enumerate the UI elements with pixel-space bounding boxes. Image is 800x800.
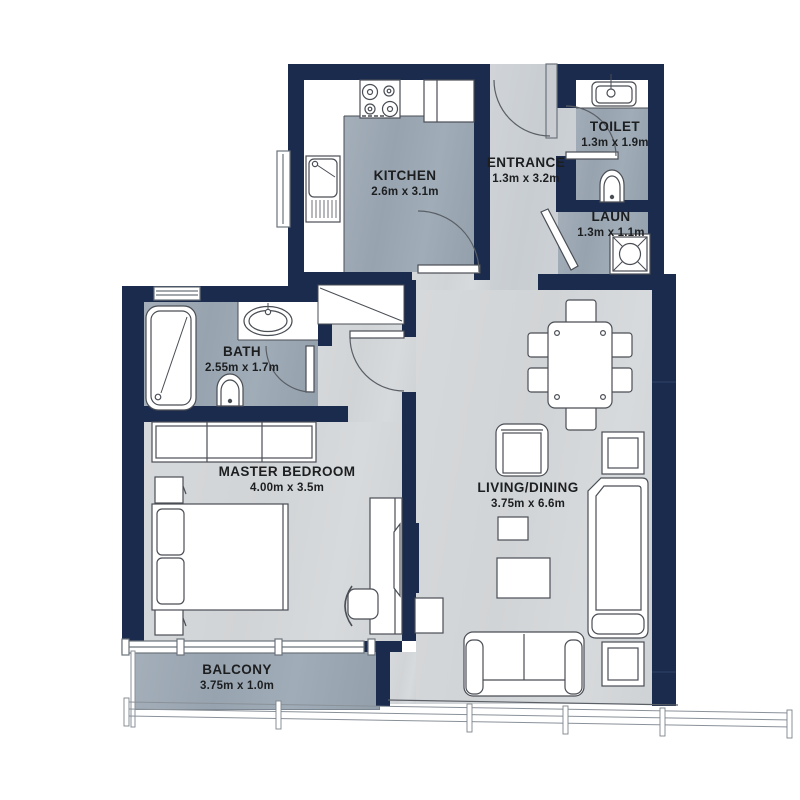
living-dining-name: LIVING/DINING (477, 480, 578, 497)
bath-sink-icon (244, 303, 292, 336)
room-label-entrance: ENTRANCE 1.3m x 3.2m (487, 155, 565, 186)
nightstand-top (155, 477, 186, 503)
wall-seams (652, 382, 676, 672)
bath-toilet-icon (217, 374, 243, 406)
chaise-lounge (588, 478, 648, 638)
room-label-kitchen: KITCHEN 2.6m x 3.1m (371, 168, 438, 199)
bathtub-icon (146, 306, 196, 410)
bath-window (154, 287, 200, 300)
balcony-dims: 3.75m x 1.0m (200, 679, 274, 693)
room-label-balcony: BALCONY 3.75m x 1.0m (200, 662, 274, 693)
toilet-fixture-icon (600, 170, 624, 202)
coffee-table (497, 558, 550, 598)
armchair (496, 424, 548, 476)
tv-icon (413, 523, 419, 593)
ottoman (498, 517, 528, 540)
kitchen-window (277, 151, 290, 227)
toilet-dims: 1.3m x 1.9m (581, 136, 648, 150)
kitchen-door (418, 211, 480, 273)
bedroom-window (122, 639, 375, 655)
living-dining-dims: 3.75m x 6.6m (477, 497, 578, 511)
plan-symbols (0, 0, 800, 800)
room-label-living-dining: LIVING/DINING 3.75m x 6.6m (477, 480, 578, 511)
master-bedroom-dims: 4.00m x 3.5m (219, 481, 356, 495)
entrance-name: ENTRANCE (487, 155, 565, 172)
laundry-door (541, 209, 578, 270)
nightstand-bottom (155, 609, 186, 635)
side-table-bottom (602, 642, 644, 686)
side-table-top (602, 432, 644, 474)
wardrobe (152, 422, 316, 462)
hall-closet (318, 285, 404, 324)
laundry-dims: 1.3m x 1.1m (577, 226, 644, 240)
sofa (464, 632, 584, 696)
room-label-laundry: LAUN 1.3m x 1.1m (577, 209, 644, 240)
kitchen-name: KITCHEN (371, 168, 438, 185)
master-bedroom-name: MASTER BEDROOM (219, 464, 356, 481)
entrance-door (494, 64, 557, 138)
kitchen-dims: 2.6m x 3.1m (371, 185, 438, 199)
bath-dims: 2.55m x 1.7m (205, 361, 279, 375)
dining-table (528, 300, 632, 430)
floor-plan: KITCHEN 2.6m x 3.1m ENTRANCE 1.3m x 3.2m… (0, 0, 800, 800)
toilet-sink-icon (592, 74, 636, 106)
room-label-master-bedroom: MASTER BEDROOM 4.00m x 3.5m (219, 464, 356, 495)
living-window-line (388, 700, 678, 705)
room-label-bath: BATH 2.55m x 1.7m (205, 344, 279, 375)
toilet-name: TOILET (581, 119, 648, 136)
room-label-toilet: TOILET 1.3m x 1.9m (581, 119, 648, 150)
kitchen-sink-icon (306, 156, 340, 222)
entrance-dims: 1.3m x 3.2m (487, 172, 565, 186)
balcony-name: BALCONY (200, 662, 274, 679)
bed (152, 504, 288, 610)
bath-name: BATH (205, 344, 279, 361)
stove-icon (360, 80, 400, 118)
tv-cabinet (415, 598, 443, 633)
bedroom-door (350, 331, 404, 391)
laundry-name: LAUN (577, 209, 644, 226)
kitchen-cabinet (424, 80, 474, 122)
